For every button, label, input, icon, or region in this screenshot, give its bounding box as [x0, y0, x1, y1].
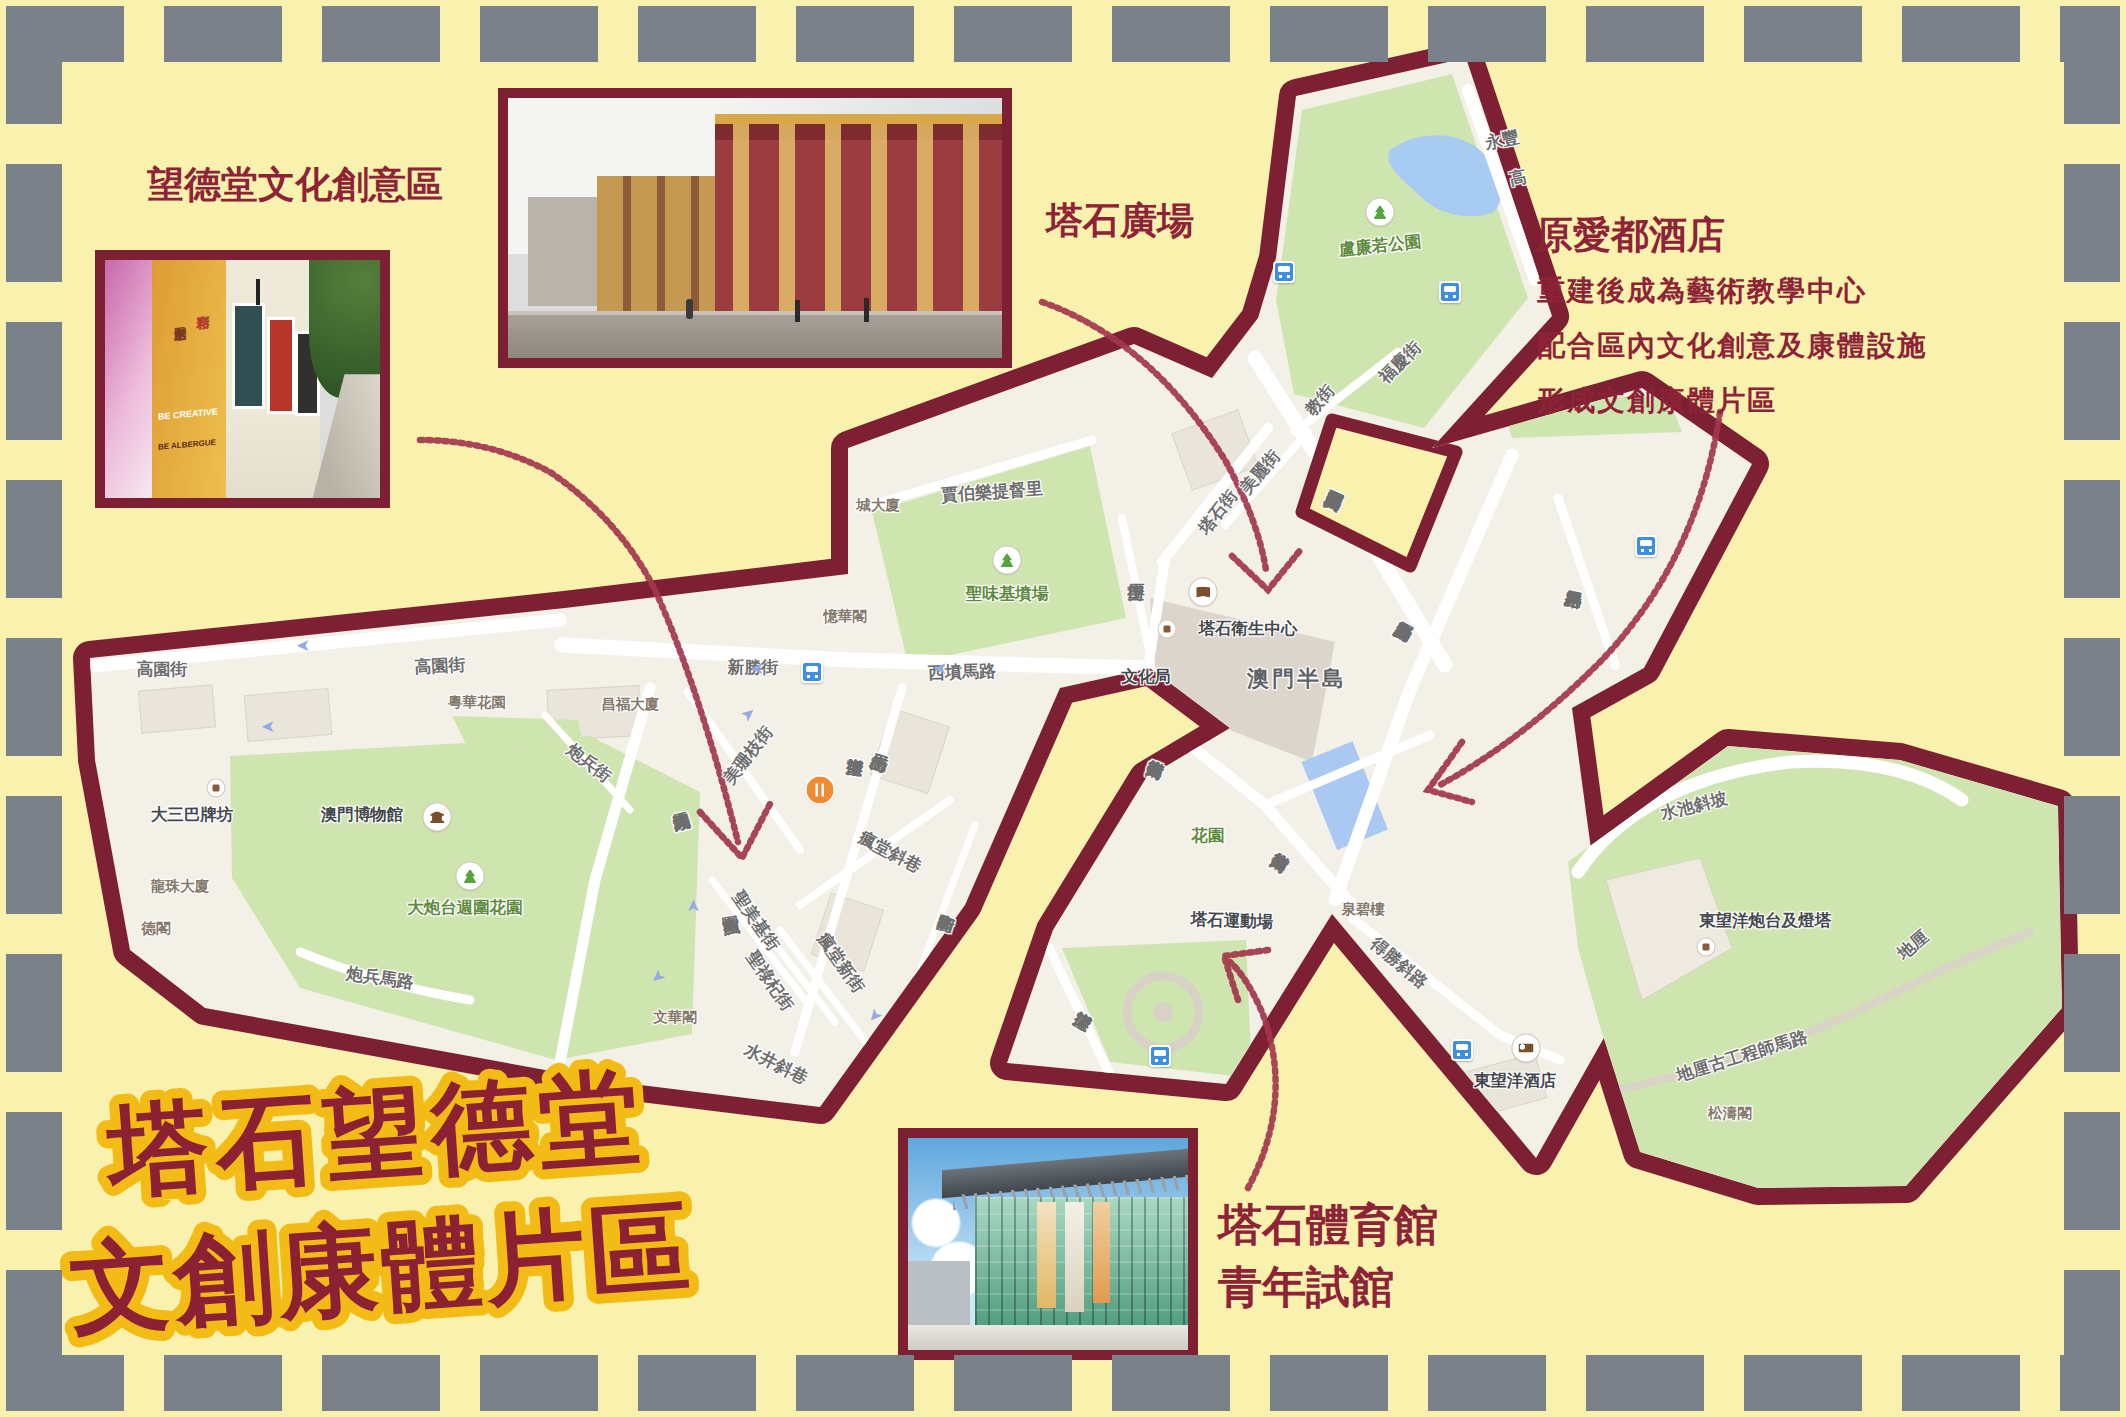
photo-text: 精彩: [193, 305, 211, 307]
building-label: 昌福大廈: [601, 695, 659, 714]
building-label: 粵華花園: [448, 693, 506, 712]
street-label: 高園街: [414, 653, 466, 679]
poster-title-line2: 文創康體片區: [66, 1189, 696, 1344]
park-tree-icon: [457, 863, 484, 890]
photo-pedestrian: [686, 299, 693, 319]
photo-building-maroon: [715, 114, 1002, 327]
oneway-arrow-icon: ➤: [262, 718, 275, 736]
bus-stop-icon: [1149, 1045, 1171, 1067]
bus-stop-icon: [801, 661, 823, 683]
oneway-arrow-icon: ➤: [934, 660, 947, 678]
callout-estoril-line2: 配合區內文化創意及康體設施: [1537, 327, 1927, 365]
poi-label: 東望洋炮台及燈塔: [1699, 910, 1831, 932]
photo-banner: [1093, 1202, 1110, 1304]
hotel-bed-icon: [1513, 1035, 1540, 1062]
photo-poster: [232, 303, 266, 409]
building-label: 松濤閣: [1708, 1104, 1752, 1123]
poi-label: 文化局: [1121, 666, 1171, 688]
bus-stop-icon: [1451, 1039, 1473, 1061]
street-label: 高園街: [137, 658, 188, 681]
callout-estoril-title: 原愛都酒店: [1535, 210, 1725, 261]
building-label: 德閣: [142, 919, 171, 938]
building-label: 泉碧樓: [1341, 900, 1385, 919]
bus-stop-icon: [1635, 535, 1657, 557]
park-label: 花園: [1192, 825, 1225, 847]
callout-tap-seac-square: 塔石廣場: [1046, 196, 1194, 246]
callout-estoril-line3: 形成文創康體片區: [1537, 382, 1777, 420]
library-book-icon: [1190, 579, 1217, 606]
museum-icon: [424, 804, 451, 831]
callout-creative-zone: 望德堂文化創意區: [147, 160, 443, 210]
oneway-arrow-icon: ➤: [751, 660, 764, 678]
photo-banner: [1037, 1202, 1057, 1308]
photo-text: BE CREATIVE: [158, 407, 218, 422]
bus-stop-icon: [1439, 281, 1461, 303]
poi-dot-icon: [1159, 621, 1176, 638]
photo-banner: [1065, 1202, 1085, 1312]
photo-building-tan: [597, 176, 725, 316]
restaurant-icon: [807, 777, 834, 804]
oneway-arrow-icon: ➤: [297, 637, 310, 655]
photo-text: BE ALBERGUE: [158, 438, 216, 452]
building-label: 憶華閣: [823, 607, 867, 626]
poster-title-line1: 塔石望德堂: [100, 1058, 650, 1208]
building-label: 文華閣: [653, 1008, 697, 1027]
photo-bollard: [864, 298, 869, 322]
poi-label: 塔石衛生中心: [1199, 618, 1298, 640]
poi-label: 大三巴牌坊: [151, 804, 234, 826]
cemetery-tree-icon: [994, 547, 1021, 574]
park-label: 大炮台週圍花園: [407, 897, 523, 919]
photo-sports-pavilion: [898, 1128, 1198, 1360]
callout-pavilion-line1: 塔石體育館: [1218, 1196, 1438, 1255]
photo-lamp: [256, 279, 260, 305]
cemetery-label: 聖味基墳場: [966, 583, 1049, 605]
photo-building-left: [908, 1261, 970, 1325]
poi-label: 澳門博物館: [321, 804, 404, 826]
locality-label: 澳門半島: [1247, 664, 1347, 694]
building-label: 城大廈: [856, 496, 900, 515]
park-tree-icon: [1367, 199, 1394, 226]
poi-label: 塔石運動場: [1190, 909, 1273, 934]
poi-dot-icon: [208, 780, 225, 797]
oneway-arrow-icon: ➤: [684, 900, 702, 913]
photo-bollard: [795, 300, 800, 322]
photo-plaza: [908, 1325, 1188, 1350]
photo-shape: 精彩 創意無限 BE CREATIVE BE ALBERGUE: [152, 250, 226, 508]
bus-stop-icon: [1273, 261, 1295, 283]
poi-dot-icon: [1698, 939, 1715, 956]
photo-text: 創意無限: [171, 317, 188, 318]
photo-pavement: [508, 311, 1002, 358]
building-label: 龍珠大廈: [151, 877, 209, 896]
photo-poster: [267, 317, 295, 413]
poster-page: { "colors":{"page_bg":"#f9f1ae","frame_g…: [0, 0, 2126, 1417]
photo-tap-seac-square: [498, 88, 1012, 368]
photo-albergue-street: 精彩 創意無限 BE CREATIVE BE ALBERGUE: [95, 250, 390, 508]
callout-pavilion-line2: 青年試館: [1218, 1258, 1394, 1317]
poi-label: 東望洋酒店: [1474, 1070, 1557, 1092]
callout-estoril-line1: 重建後成為藝術教學中心: [1537, 272, 1867, 310]
